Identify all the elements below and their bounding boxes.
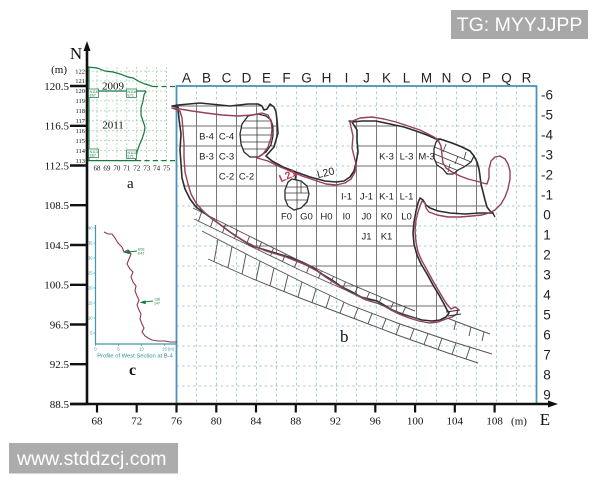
svg-text:b: b bbox=[340, 327, 349, 346]
svg-text:121: 121 bbox=[75, 78, 85, 85]
svg-text:J1: J1 bbox=[361, 231, 371, 242]
svg-text:88.5: 88.5 bbox=[50, 399, 70, 411]
svg-text:72: 72 bbox=[133, 165, 141, 173]
svg-text:104.5: 104.5 bbox=[44, 240, 69, 252]
svg-text:G: G bbox=[301, 71, 312, 86]
svg-text:I: I bbox=[345, 71, 349, 86]
svg-text:74: 74 bbox=[153, 165, 161, 173]
svg-text:92: 92 bbox=[330, 416, 341, 428]
svg-text:-5: -5 bbox=[541, 108, 553, 123]
svg-text:B-4: B-4 bbox=[199, 131, 214, 142]
svg-text:O: O bbox=[461, 71, 472, 86]
svg-text:B-3: B-3 bbox=[199, 151, 214, 162]
svg-text:-3: -3 bbox=[541, 148, 553, 163]
svg-text:M-3: M-3 bbox=[418, 151, 434, 162]
svg-text:Profile of West Section at B-4: Profile of West Section at B-4 bbox=[97, 354, 173, 360]
svg-text:-6: -6 bbox=[541, 88, 553, 103]
svg-text:Q: Q bbox=[501, 71, 512, 86]
svg-text:147: 147 bbox=[154, 302, 160, 306]
svg-text:C: C bbox=[222, 71, 232, 86]
svg-text:R: R bbox=[522, 71, 532, 86]
svg-text:I0: I0 bbox=[343, 211, 351, 222]
svg-text:30: 30 bbox=[88, 256, 93, 261]
svg-text:E71: E71 bbox=[128, 155, 134, 159]
svg-text:(m): (m) bbox=[511, 416, 527, 428]
svg-text:C-4: C-4 bbox=[219, 131, 234, 142]
svg-text:6: 6 bbox=[543, 328, 551, 343]
svg-text:116: 116 bbox=[75, 128, 85, 135]
svg-text:J-1: J-1 bbox=[360, 191, 373, 202]
svg-text:15: 15 bbox=[162, 347, 167, 352]
svg-text:E: E bbox=[540, 410, 550, 429]
svg-text:100.5: 100.5 bbox=[44, 280, 69, 292]
svg-text:100: 100 bbox=[407, 416, 424, 428]
svg-text:112.5: 112.5 bbox=[45, 160, 70, 172]
svg-text:(m): (m) bbox=[168, 347, 175, 352]
svg-text:68: 68 bbox=[92, 416, 104, 428]
svg-text:K0: K0 bbox=[381, 211, 393, 222]
svg-text:C-3: C-3 bbox=[219, 151, 234, 162]
svg-text:1: 1 bbox=[543, 228, 551, 243]
svg-text:0: 0 bbox=[543, 208, 551, 223]
svg-text:119: 119 bbox=[75, 98, 85, 105]
svg-text:72: 72 bbox=[131, 416, 142, 428]
svg-text:L-3: L-3 bbox=[400, 151, 414, 162]
svg-text:K-1: K-1 bbox=[379, 191, 394, 202]
svg-text:25: 25 bbox=[88, 271, 93, 276]
svg-text:115: 115 bbox=[75, 138, 85, 145]
svg-text:M: M bbox=[421, 71, 432, 86]
svg-text:118: 118 bbox=[75, 108, 85, 115]
svg-text:K: K bbox=[382, 71, 391, 86]
svg-text:96.5: 96.5 bbox=[50, 319, 70, 331]
svg-text:3: 3 bbox=[543, 268, 551, 283]
svg-text:P: P bbox=[482, 71, 491, 86]
svg-text:H0: H0 bbox=[320, 211, 332, 222]
svg-text:K1: K1 bbox=[381, 231, 393, 242]
svg-text:F: F bbox=[282, 71, 290, 86]
svg-text:122: 122 bbox=[75, 68, 85, 75]
svg-text:9: 9 bbox=[543, 388, 551, 403]
svg-text:2: 2 bbox=[543, 248, 551, 263]
svg-text:F0: F0 bbox=[281, 211, 292, 222]
svg-text:10: 10 bbox=[88, 316, 93, 321]
svg-text:N: N bbox=[442, 71, 452, 86]
svg-text:2011: 2011 bbox=[102, 120, 124, 132]
svg-text:B: B bbox=[202, 71, 211, 86]
svg-text:www.stddzcj.com: www.stddzcj.com bbox=[16, 448, 167, 470]
svg-text:104: 104 bbox=[447, 416, 464, 428]
svg-text:C-2: C-2 bbox=[219, 171, 234, 182]
svg-text:113: 113 bbox=[75, 158, 85, 165]
svg-text:8: 8 bbox=[543, 368, 551, 383]
svg-text:69: 69 bbox=[103, 165, 111, 173]
svg-text:L: L bbox=[403, 71, 411, 86]
svg-text:L0: L0 bbox=[401, 211, 412, 222]
svg-text:35: 35 bbox=[88, 241, 93, 246]
svg-text:108: 108 bbox=[486, 416, 503, 428]
svg-text:20: 20 bbox=[88, 286, 93, 291]
svg-text:J0: J0 bbox=[361, 211, 371, 222]
svg-text:-2: -2 bbox=[541, 168, 553, 183]
svg-text:92.5: 92.5 bbox=[50, 359, 70, 371]
svg-text:7: 7 bbox=[543, 348, 551, 363]
svg-text:88: 88 bbox=[290, 416, 302, 428]
svg-text:c: c bbox=[129, 362, 136, 379]
svg-text:-1: -1 bbox=[541, 188, 553, 203]
svg-text:96: 96 bbox=[370, 416, 382, 428]
svg-text:J: J bbox=[363, 71, 370, 86]
svg-text:I-1: I-1 bbox=[341, 191, 352, 202]
svg-text:a: a bbox=[127, 176, 134, 192]
svg-text:84: 84 bbox=[251, 416, 263, 428]
svg-text:L-1: L-1 bbox=[400, 191, 414, 202]
svg-text:40: 40 bbox=[88, 226, 93, 231]
svg-text:68: 68 bbox=[94, 165, 102, 173]
svg-text:120.5: 120.5 bbox=[44, 81, 69, 93]
svg-text:2009: 2009 bbox=[102, 81, 125, 93]
svg-text:G0: G0 bbox=[300, 211, 313, 222]
svg-text:(m): (m) bbox=[51, 64, 67, 76]
svg-text:E: E bbox=[262, 71, 271, 86]
svg-text:75: 75 bbox=[163, 165, 171, 173]
svg-text:108.5: 108.5 bbox=[44, 200, 69, 212]
svg-text:71: 71 bbox=[123, 165, 131, 173]
svg-text:A: A bbox=[182, 71, 191, 86]
svg-text:E71: E71 bbox=[128, 94, 134, 98]
svg-text:TG: MYYJJPP: TG: MYYJJPP bbox=[457, 14, 583, 36]
svg-text:4: 4 bbox=[543, 288, 551, 303]
svg-text:C-2: C-2 bbox=[239, 171, 254, 182]
svg-text:K-3: K-3 bbox=[379, 151, 394, 162]
svg-text:E67: E67 bbox=[90, 154, 96, 158]
svg-text:114: 114 bbox=[75, 148, 85, 155]
svg-text:-4: -4 bbox=[541, 128, 553, 143]
svg-text:E67: E67 bbox=[90, 94, 96, 98]
svg-text:117: 117 bbox=[75, 118, 85, 125]
svg-text:15: 15 bbox=[88, 301, 93, 306]
svg-text:120: 120 bbox=[75, 88, 85, 95]
svg-text:5: 5 bbox=[543, 308, 551, 323]
svg-text:E47: E47 bbox=[138, 252, 144, 256]
svg-text:73: 73 bbox=[143, 165, 151, 173]
svg-text:70: 70 bbox=[113, 165, 121, 173]
svg-text:10: 10 bbox=[139, 347, 144, 352]
svg-text:H: H bbox=[322, 71, 332, 86]
svg-text:116.5: 116.5 bbox=[45, 121, 70, 133]
svg-text:76: 76 bbox=[171, 416, 183, 428]
svg-text:D: D bbox=[242, 71, 252, 86]
svg-text:80: 80 bbox=[211, 416, 223, 428]
svg-text:N: N bbox=[70, 44, 82, 63]
